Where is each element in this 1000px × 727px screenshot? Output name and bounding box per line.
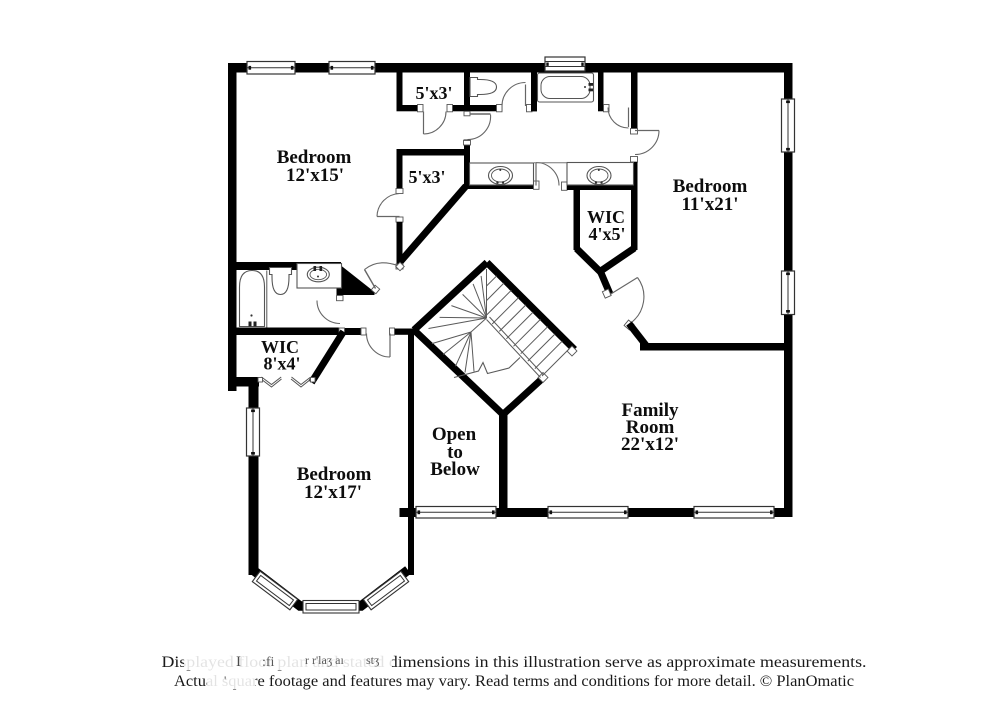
svg-text:11'x21': 11'x21' bbox=[681, 194, 738, 215]
svg-text:Below: Below bbox=[430, 459, 480, 480]
svg-text:12'x15': 12'x15' bbox=[286, 165, 344, 186]
svg-text:I: I bbox=[236, 654, 241, 670]
svg-text:12'x17': 12'x17' bbox=[304, 482, 362, 503]
svg-text:4'x5': 4'x5' bbox=[588, 224, 625, 244]
svg-text:r r'laʒ aı: r r'laʒ aı bbox=[305, 653, 344, 667]
svg-text:stʒ: stʒ bbox=[366, 653, 379, 667]
svg-text:8'x4': 8'x4' bbox=[263, 354, 300, 374]
svg-text:Actual square footage and feat: Actual square footage and features may v… bbox=[174, 673, 854, 690]
svg-text:5'x3': 5'x3' bbox=[415, 83, 452, 103]
svg-text:': ' bbox=[224, 673, 226, 688]
svg-text::fi: :fi bbox=[262, 655, 275, 670]
svg-text:5'x3': 5'x3' bbox=[408, 167, 445, 187]
svg-text:22'x12': 22'x12' bbox=[621, 434, 679, 455]
